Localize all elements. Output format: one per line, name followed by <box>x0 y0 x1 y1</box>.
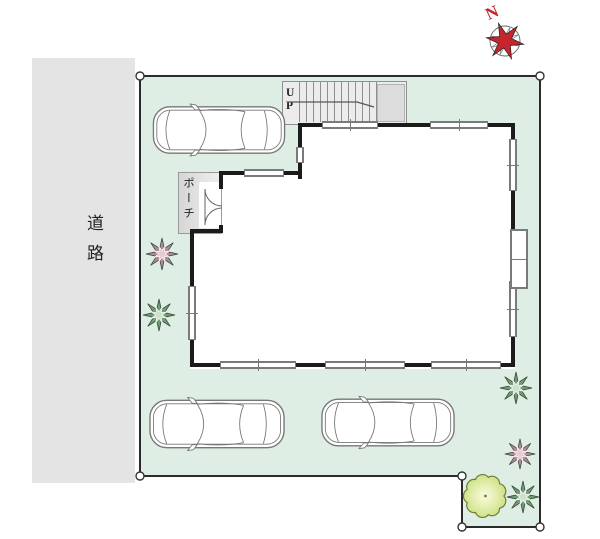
window <box>431 361 501 369</box>
plant-icon <box>496 368 536 408</box>
porch-label: ポーチ <box>180 177 196 222</box>
boundary-corner-marker <box>536 72 544 80</box>
window <box>322 121 378 129</box>
car-top-left <box>150 103 288 157</box>
car-bottom-left <box>148 396 286 452</box>
stairs-direction-arrow-icon <box>283 82 406 124</box>
boundary-corner-marker <box>536 523 544 531</box>
window <box>509 281 517 337</box>
site-plan: 道路 U P ポーチ <box>0 0 600 539</box>
boundary-corner-marker <box>136 72 144 80</box>
compass-rose-icon <box>478 14 532 68</box>
tree-icon <box>462 473 508 519</box>
window <box>509 139 517 191</box>
window <box>244 169 284 177</box>
plant-icon <box>503 477 543 517</box>
boundary-corner-marker <box>136 472 144 480</box>
car-bottom-right <box>320 395 456 450</box>
door-swing-icon <box>196 178 226 230</box>
plant-icon <box>142 234 182 274</box>
window <box>188 286 196 340</box>
window <box>430 121 488 129</box>
stairs: U P <box>282 81 407 125</box>
boundary-corner-marker <box>458 523 466 531</box>
plant-icon <box>139 295 179 335</box>
plant-icon <box>501 435 539 473</box>
bay-window <box>510 229 528 289</box>
window <box>220 361 296 369</box>
window <box>325 361 405 369</box>
window <box>296 147 304 163</box>
road-label: 道路 <box>76 214 106 274</box>
